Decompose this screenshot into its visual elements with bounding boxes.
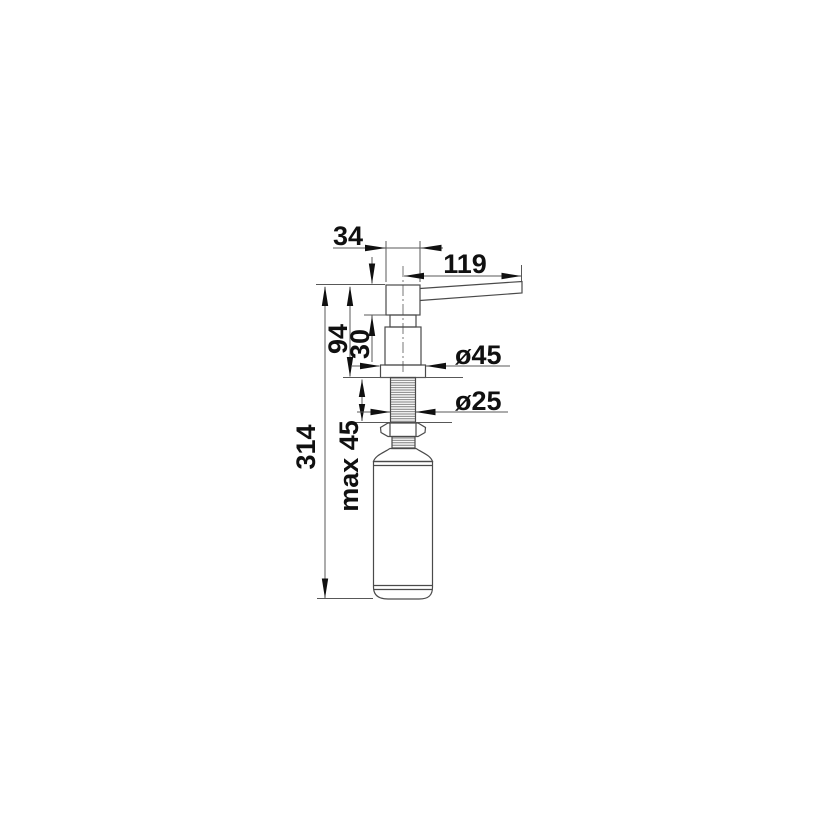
dim-head-width-label: 34 bbox=[333, 221, 363, 251]
arrowhead bbox=[322, 286, 328, 306]
dimension-head-height: 30 bbox=[345, 257, 386, 362]
arrowhead bbox=[502, 273, 522, 279]
dimension-spout-reach: 119 bbox=[404, 249, 522, 281]
dim-spout-reach-label: 119 bbox=[443, 249, 487, 279]
spout bbox=[420, 282, 522, 301]
dimension-max-deck-thickness: max 45 bbox=[334, 380, 365, 512]
arrowhead bbox=[426, 363, 446, 369]
arrowhead bbox=[322, 579, 328, 599]
locknut bbox=[381, 423, 426, 437]
soap-dispenser-drawing: 34 119 94 30 314 max 45 bbox=[0, 0, 830, 830]
arrowhead bbox=[359, 380, 365, 398]
arrowhead bbox=[404, 273, 424, 279]
dimension-thread-diameter: ø25 bbox=[357, 386, 508, 416]
dim-head-height-label: 30 bbox=[345, 329, 375, 359]
technical-drawing-canvas: 34 119 94 30 314 max 45 bbox=[0, 0, 830, 830]
arrowhead bbox=[369, 264, 375, 285]
arrowhead bbox=[416, 409, 436, 415]
bottle-body bbox=[374, 462, 433, 600]
dim-flange-diameter-label: ø45 bbox=[455, 340, 502, 370]
dim-thread-diameter-label: ø25 bbox=[455, 386, 502, 416]
threaded-shank-lower bbox=[392, 437, 415, 449]
arrowhead bbox=[421, 245, 442, 251]
arrowhead bbox=[371, 409, 391, 415]
bottle-shoulder bbox=[374, 449, 433, 462]
arrowhead bbox=[360, 363, 380, 369]
dim-total-height-label: 314 bbox=[291, 424, 321, 469]
threaded-shank-upper bbox=[391, 378, 416, 423]
dim-max-deck-thickness-label: max 45 bbox=[334, 420, 364, 512]
dimension-head-width: 34 bbox=[333, 221, 443, 282]
arrowhead bbox=[365, 245, 386, 251]
arrowhead bbox=[347, 286, 353, 306]
